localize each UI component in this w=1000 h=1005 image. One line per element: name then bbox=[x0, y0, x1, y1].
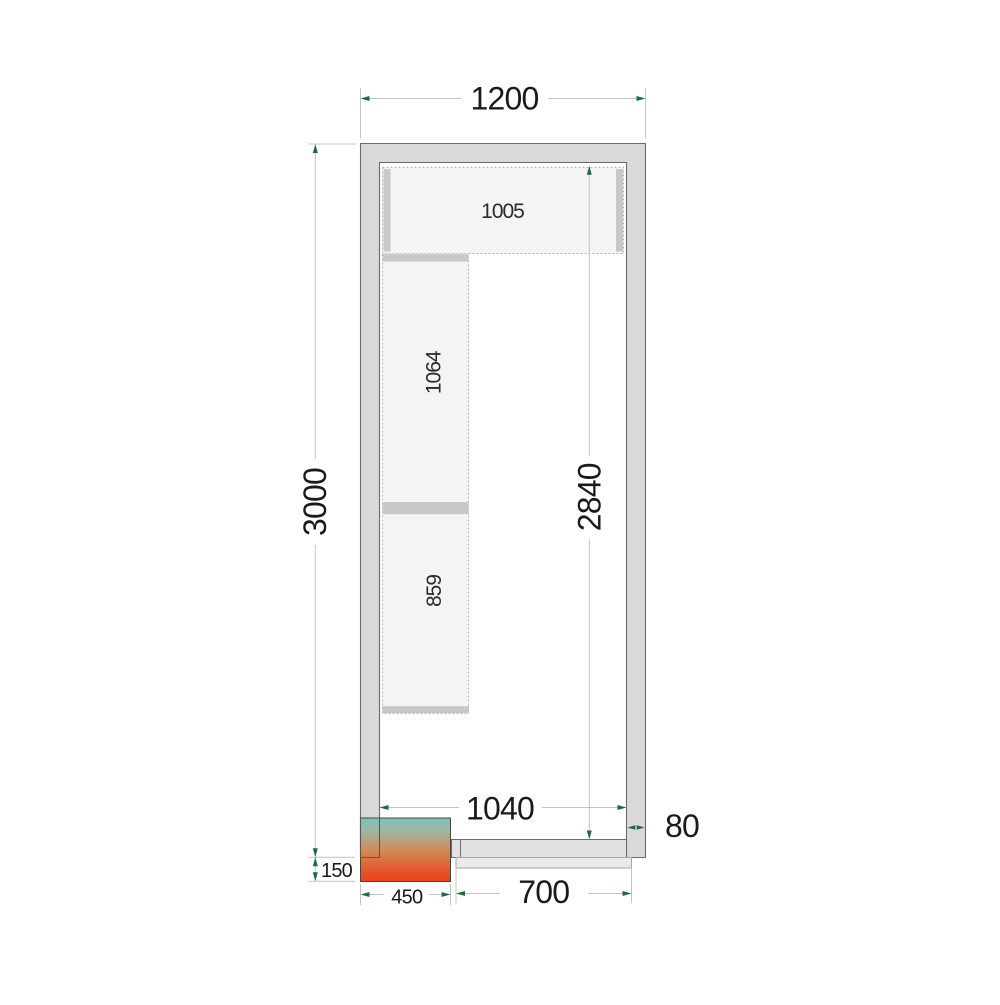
svg-text:1040: 1040 bbox=[466, 790, 534, 826]
svg-text:700: 700 bbox=[518, 874, 569, 910]
svg-text:1064: 1064 bbox=[423, 350, 446, 394]
svg-text:80: 80 bbox=[665, 808, 699, 844]
svg-text:1200: 1200 bbox=[471, 80, 539, 116]
svg-text:150: 150 bbox=[321, 860, 353, 882]
svg-text:1005: 1005 bbox=[481, 200, 524, 223]
svg-text:3000: 3000 bbox=[297, 468, 333, 536]
svg-text:2840: 2840 bbox=[571, 463, 607, 531]
svg-text:450: 450 bbox=[391, 887, 423, 909]
svg-text:859: 859 bbox=[423, 575, 446, 607]
